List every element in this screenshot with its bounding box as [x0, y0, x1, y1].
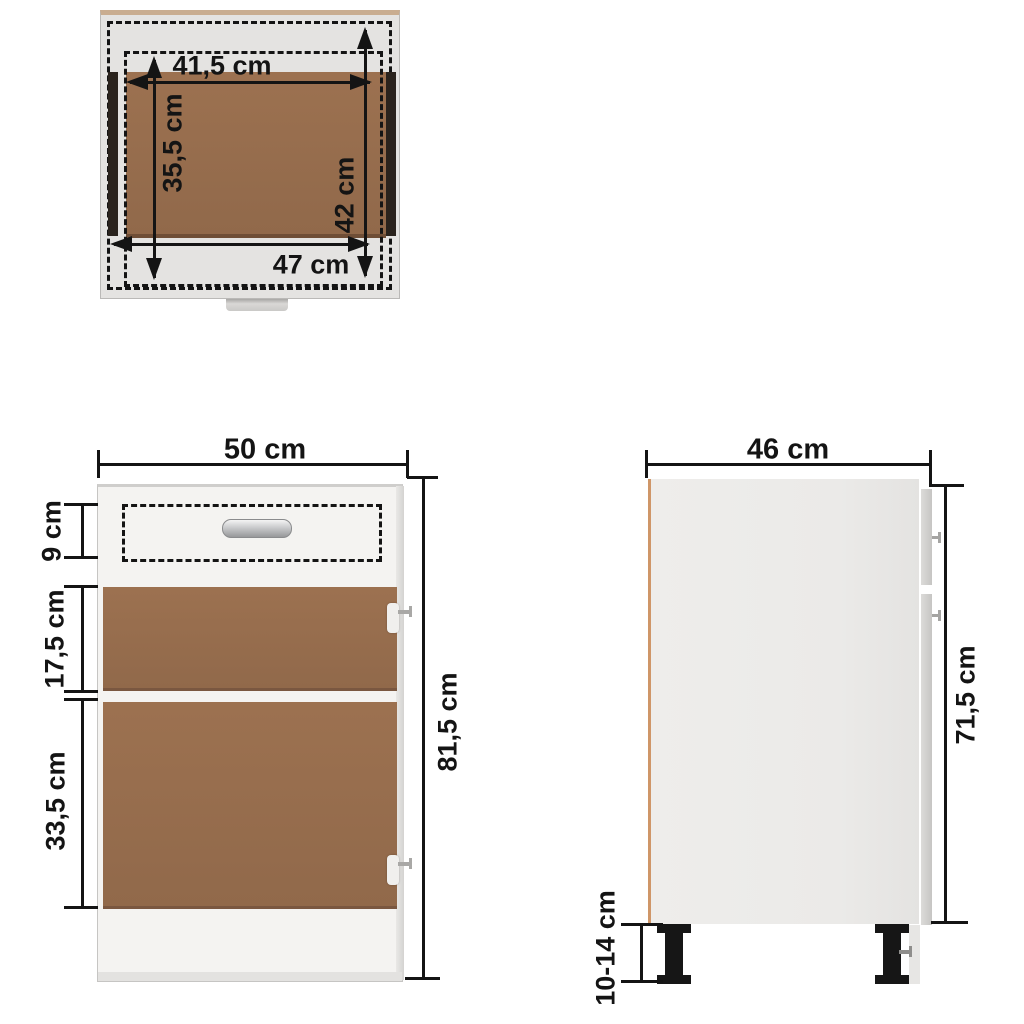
- dim-line-71-5: [944, 484, 947, 924]
- side-view: 46 cm 71,5 cm 10-14 cm: [0, 0, 1024, 1024]
- leg-right-foot: [875, 975, 909, 984]
- leg-left-stem: [665, 933, 683, 976]
- leg-adjuster-pin-cap: [909, 946, 912, 957]
- door-edge-strip: [921, 594, 932, 925]
- dim-line-10-14: [640, 923, 643, 983]
- hinge-pin-upper-cap: [938, 532, 941, 543]
- drawer-front-edge-strip: [921, 489, 932, 585]
- dim-label-10-14: 10-14 cm: [593, 890, 620, 1006]
- dim-label-71-5: 71,5 cm: [953, 645, 980, 744]
- leg-right-stem: [883, 933, 901, 976]
- leg-right-flange: [875, 924, 909, 933]
- dim-tick: [929, 450, 932, 487]
- cabinet-side-panel: [648, 479, 919, 924]
- dim-label-46: 46 cm: [747, 436, 829, 465]
- dimension-diagram: 41,5 cm 47 cm 35,5 cm 42 cm 50 cm: [0, 0, 1024, 1024]
- hinge-pin-lower-cap: [938, 610, 941, 621]
- dim-tick: [931, 921, 968, 924]
